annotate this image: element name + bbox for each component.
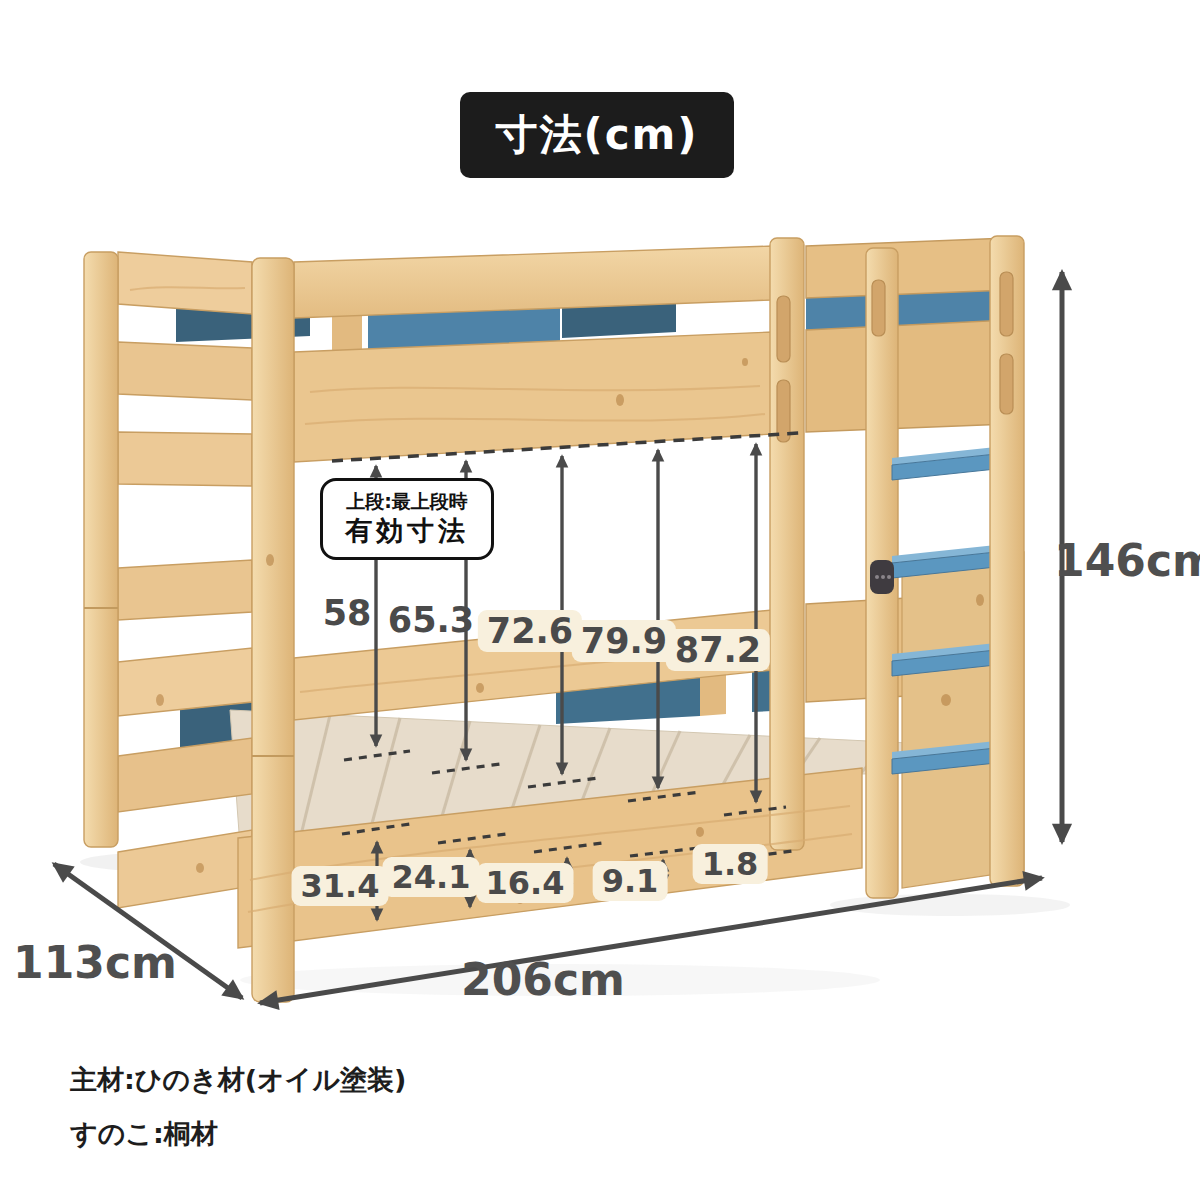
material-note-main: 主材:ひのき材(オイル塗装)	[70, 1062, 406, 1098]
left-end-post	[84, 252, 118, 847]
effective-dimension-callout: 上段:最上段時 有効寸法	[320, 478, 494, 560]
material-notes: 主材:ひのき材(オイル塗装) すのこ:桐材	[70, 1062, 406, 1170]
title-badge-label: 寸法(cm)	[495, 107, 698, 163]
clearance-label-87-2: 87.2	[666, 629, 770, 671]
material-note-slats: すのこ:桐材	[70, 1116, 406, 1152]
clearance-label-72-6: 72.6	[478, 610, 582, 652]
clearance-label-58: 58	[323, 593, 372, 633]
title-badge: 寸法(cm)	[460, 92, 734, 178]
grip-slot	[872, 280, 885, 336]
height-label: 146cm	[1054, 535, 1200, 586]
left-end-panel	[118, 252, 252, 908]
platform-label-9-1: 9.1	[593, 861, 668, 901]
dimension-diagram: 寸法(cm) 上段:最上段時 有効寸法 58 65.3 72.6 79.9 87…	[0, 0, 1200, 1200]
callout-line1: 上段:最上段時	[346, 490, 468, 514]
grip-slot	[1000, 272, 1013, 336]
right-corner-post	[770, 238, 804, 850]
platform-label-31-4: 31.4	[292, 866, 389, 906]
grip-slot	[1000, 354, 1013, 414]
platform-label-1-8: 1.8	[693, 844, 768, 884]
corner-post	[252, 258, 294, 1002]
grip-slot	[777, 296, 790, 362]
upper-guard-rail	[294, 246, 772, 318]
length-label: 206cm	[461, 954, 625, 1005]
latch-fitting	[870, 560, 894, 594]
platform-label-16-4: 16.4	[477, 863, 574, 903]
depth-label: 113cm	[13, 937, 177, 988]
clearance-label-65-3: 65.3	[388, 600, 474, 640]
bunk-bed-illustration	[0, 0, 1200, 1200]
clearance-label-79-9: 79.9	[572, 620, 676, 662]
platform-label-24-1: 24.1	[383, 857, 480, 897]
callout-line2: 有効寸法	[345, 514, 469, 548]
upper-fascia	[294, 332, 772, 462]
